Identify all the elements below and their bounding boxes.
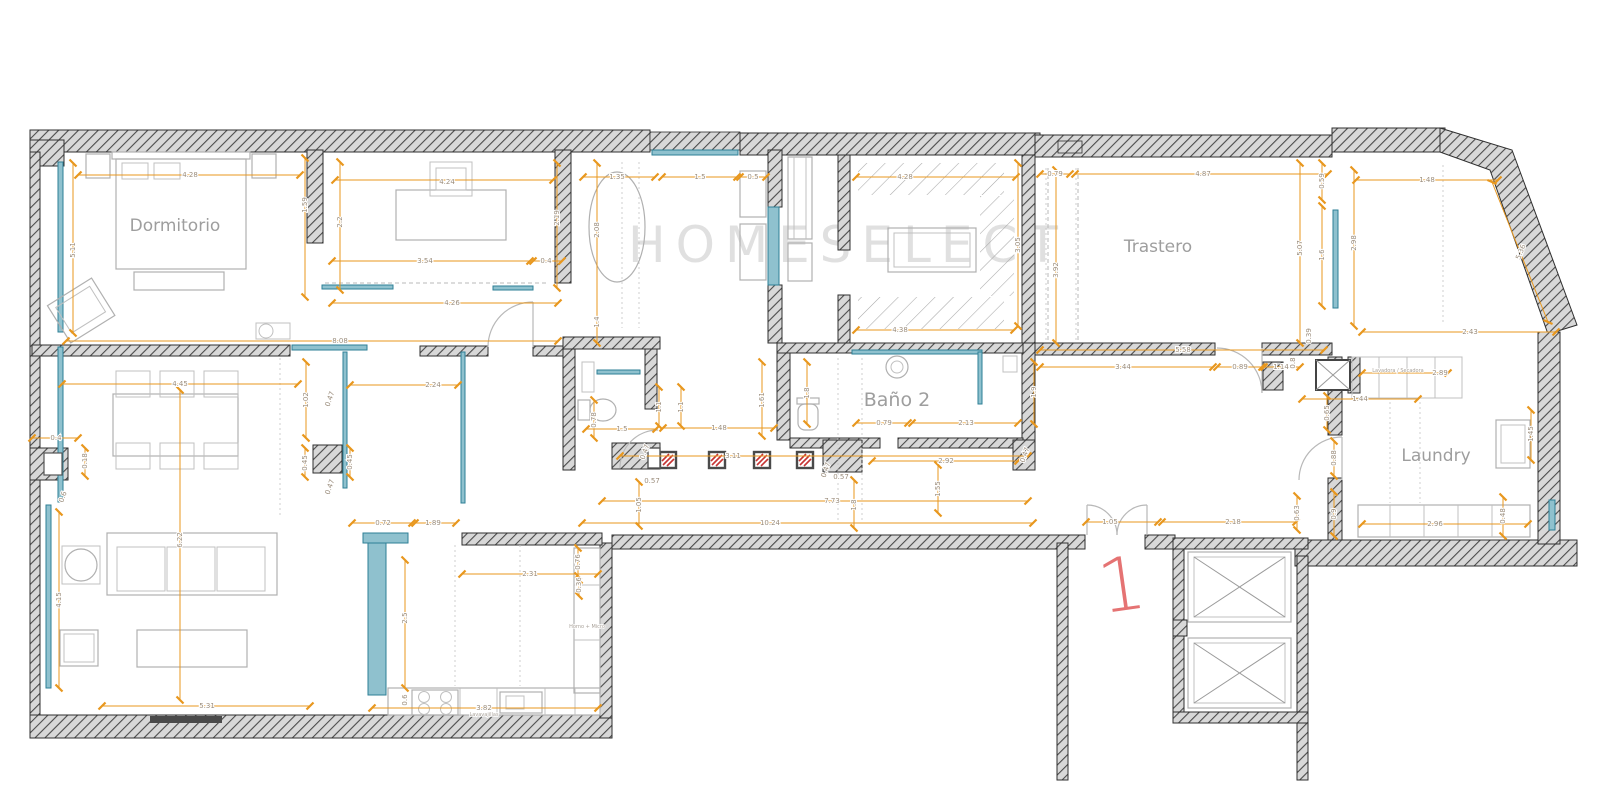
dimension-label: 3.11 bbox=[725, 452, 741, 460]
window-left-bottom bbox=[46, 505, 51, 688]
dimension-label: 10.24 bbox=[760, 519, 781, 527]
column-marker bbox=[709, 452, 725, 468]
dimension-label: 0.89 bbox=[1232, 363, 1248, 371]
dimension-label: 4.24 bbox=[439, 178, 455, 186]
dimension-label: 2.24 bbox=[425, 381, 441, 389]
dimension-label: 1.02 bbox=[302, 392, 310, 408]
window-bedroom-living bbox=[292, 345, 367, 350]
glazed-partition-hall bbox=[768, 207, 779, 285]
window-top-recess bbox=[652, 150, 738, 155]
dimension-label: 1.5 bbox=[694, 173, 705, 181]
washer-unit bbox=[1496, 420, 1530, 468]
dimension-label: 1.05 bbox=[635, 497, 643, 513]
elevator-cab-2 bbox=[1188, 638, 1291, 708]
dimension-label: 4.38 bbox=[892, 326, 908, 334]
dimension-label: 2.18 bbox=[1225, 518, 1241, 526]
window-trastero bbox=[1333, 210, 1338, 308]
vent-shaft bbox=[1316, 360, 1350, 390]
kitchen-glass-cap bbox=[363, 533, 408, 543]
dimension-label: 0.6 bbox=[401, 694, 409, 706]
column-markers bbox=[44, 448, 813, 475]
glazed-partition-living-2 bbox=[461, 352, 465, 503]
dimension-label: 3.44 bbox=[1115, 363, 1131, 371]
nightstand-right bbox=[252, 154, 276, 178]
coffee-table bbox=[137, 630, 247, 667]
elevator-cab-1 bbox=[1188, 552, 1291, 622]
column-marker bbox=[797, 452, 813, 468]
niche bbox=[648, 448, 660, 468]
room-label-laundry: Laundry bbox=[1401, 446, 1470, 466]
room-label-trastero: Trastero bbox=[1123, 237, 1192, 257]
dimension-label: 2.19 bbox=[553, 210, 561, 226]
elevator-shaft bbox=[1173, 538, 1308, 723]
dimension-label: 0.5 bbox=[747, 173, 758, 181]
door-bedroom bbox=[488, 302, 533, 347]
dimension-label: 1.9 bbox=[1030, 386, 1038, 397]
desk bbox=[396, 162, 506, 240]
dimension-label: 0.57 bbox=[644, 477, 660, 485]
dimension-label: 2.96 bbox=[1427, 520, 1443, 528]
sink-bano2 bbox=[886, 356, 908, 378]
dimension-label: 1.35 bbox=[609, 173, 625, 181]
dimension-label: 5.31 bbox=[199, 702, 215, 710]
window-left-mid bbox=[58, 347, 63, 502]
dimension-label: 0.59 bbox=[1318, 173, 1326, 189]
floor-plan-svg: HOMESELECT bbox=[0, 0, 1600, 798]
dimension-label: 3.54 bbox=[417, 257, 433, 265]
label-lavadora-secadora: Lavadora / Secadora bbox=[1372, 368, 1424, 374]
shower-screen-h bbox=[852, 350, 982, 354]
radiator-bedroom bbox=[256, 323, 290, 339]
dimension-label: 0.45 bbox=[301, 455, 309, 471]
fixture-small bbox=[1003, 356, 1017, 372]
dimension-label: 0.4 bbox=[50, 434, 62, 442]
room-label-bano2: Baño 2 bbox=[864, 389, 930, 411]
washer-dryer-closet bbox=[1352, 357, 1462, 398]
dimension-label: 8.08 bbox=[332, 337, 348, 345]
dimension-label: 2.98 bbox=[1350, 235, 1358, 251]
dimension-label: 4.28 bbox=[182, 171, 198, 179]
stove bbox=[412, 690, 458, 715]
dimension-label: 1.14 bbox=[1273, 363, 1289, 371]
dimension-label: 5.07 bbox=[1296, 240, 1304, 256]
dimension-label: 1.8 bbox=[803, 387, 811, 398]
dimension-label: 0.9 bbox=[1330, 508, 1338, 519]
dimension-label: 0.47 bbox=[324, 478, 337, 495]
dimension-label: 2.2 bbox=[336, 216, 344, 227]
dimension-label: 6.22 bbox=[176, 532, 184, 548]
dimension-label: 2.92 bbox=[938, 457, 954, 465]
window-laundry bbox=[1549, 500, 1555, 530]
wc-shelf bbox=[582, 362, 594, 392]
dimension-label: 1.55 bbox=[934, 481, 942, 497]
toilet-bano2 bbox=[797, 398, 819, 430]
kitchen-sink bbox=[500, 692, 542, 713]
dimension-label: 1.8 bbox=[850, 499, 858, 510]
wardrobe-glass-1 bbox=[322, 285, 393, 289]
label-horno-micro: Horno + Micro bbox=[569, 624, 605, 630]
dimension-label: 0.45 bbox=[346, 454, 354, 470]
dimension-label: 0.18 bbox=[81, 453, 89, 469]
dimension-label: 1.89 bbox=[425, 519, 441, 527]
dimension-label: 7.73 bbox=[824, 497, 840, 505]
dimension-label: 0.4 bbox=[540, 257, 552, 265]
dimension-label: 0.47 bbox=[324, 390, 337, 407]
dimension-label: 1.45 bbox=[1527, 426, 1535, 442]
dimension-label: 1.1 bbox=[677, 401, 685, 412]
label-lavavajillas: Lavavajillas bbox=[469, 712, 499, 718]
dimension-label: 4.45 bbox=[172, 380, 188, 388]
dimension-label: 1.61 bbox=[758, 392, 766, 408]
dimension-label: 0.88 bbox=[1330, 450, 1338, 466]
dimension-label: 0.39 bbox=[1305, 328, 1313, 344]
sofa bbox=[107, 533, 277, 595]
dimension-label: 0.76 bbox=[574, 554, 582, 570]
dimension-label: 0.8 bbox=[1289, 357, 1297, 368]
dimension-label: 1.5 bbox=[616, 425, 627, 433]
dimension-label: 1.4 bbox=[593, 316, 601, 328]
floor-plan-canvas: HOMESELECT bbox=[0, 0, 1600, 798]
armchair-living bbox=[60, 630, 98, 666]
dimension-label: 0.78 bbox=[590, 412, 598, 428]
column-fixture-left bbox=[44, 453, 62, 475]
wardrobe-glass-2 bbox=[493, 286, 533, 290]
wc-glass-shelf bbox=[597, 370, 640, 374]
unit-number: 1 bbox=[1092, 540, 1151, 632]
dimension-label: 0.63 bbox=[1293, 505, 1301, 521]
dimension-label: 5.11 bbox=[69, 242, 77, 258]
dimension-label: 3.05 bbox=[1014, 237, 1022, 253]
side-table bbox=[62, 546, 100, 584]
dimension-label: 1.05 bbox=[1102, 518, 1118, 526]
dimension-label: 3.92 bbox=[1052, 262, 1060, 278]
dimension-label: 0.48 bbox=[1499, 508, 1507, 524]
dimension-label: 0.79 bbox=[876, 419, 892, 427]
dimension-label: 1.1 bbox=[655, 401, 663, 412]
dimension-label: 2.08 bbox=[593, 222, 601, 238]
dimension-label: 0.72 bbox=[375, 519, 391, 527]
dimension-label: 2.5 bbox=[401, 612, 409, 623]
dimension-label: 1.6 bbox=[1318, 249, 1326, 261]
column-marker bbox=[660, 452, 676, 468]
dimension-label: 3.82 bbox=[476, 704, 492, 712]
dimension-label: 2.89 bbox=[1432, 369, 1448, 377]
dimension-label: 1.44 bbox=[1352, 395, 1368, 403]
dimension-label: 1.59 bbox=[301, 197, 309, 213]
dimension-label: 1.48 bbox=[711, 424, 727, 432]
shower-screen-v bbox=[978, 352, 982, 404]
dimension-label: 2.43 bbox=[1462, 328, 1478, 336]
dimension-label: 0.36 bbox=[575, 577, 583, 593]
dimension-label: 4.15 bbox=[55, 592, 63, 608]
window-left-top bbox=[58, 162, 63, 332]
tv-unit bbox=[150, 716, 222, 723]
column-marker bbox=[754, 452, 770, 468]
kitchen-counter bbox=[388, 688, 600, 715]
dimension-label: 1.48 bbox=[1419, 176, 1435, 184]
dimension-label: 0.57 bbox=[833, 473, 849, 481]
dimension-label: 4.28 bbox=[897, 173, 913, 181]
dimension-label: 2.13 bbox=[958, 419, 974, 427]
room-label-dormitorio: Dormitorio bbox=[130, 216, 221, 236]
dimension-label: 5.58 bbox=[1175, 346, 1191, 354]
dimension-label: 2.31 bbox=[522, 570, 538, 578]
dimension-label: 4.26 bbox=[444, 299, 460, 307]
nightstand-left bbox=[86, 154, 110, 178]
dimension-label: 4.87 bbox=[1195, 170, 1211, 178]
dimension-label: 0.79 bbox=[1047, 170, 1063, 178]
kitchen-glass-band bbox=[368, 543, 386, 695]
dimension-label: 0.65 bbox=[1323, 405, 1331, 421]
